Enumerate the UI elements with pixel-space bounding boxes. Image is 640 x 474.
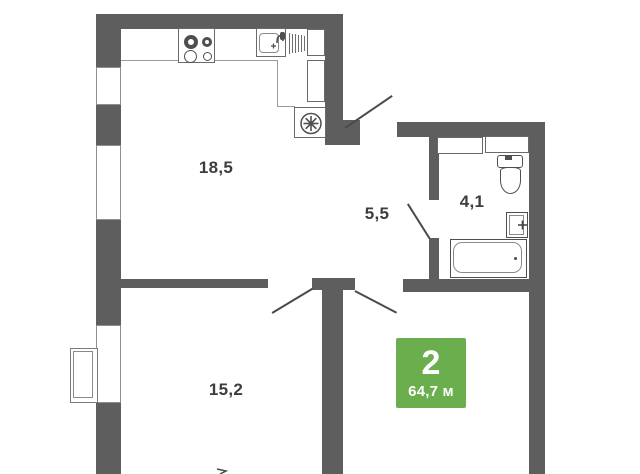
dish-rack-line bbox=[301, 35, 302, 52]
door-swing-bedroom bbox=[272, 288, 313, 314]
stove-icon bbox=[178, 28, 215, 63]
dish-rack-line bbox=[292, 34, 293, 53]
door-swing-living bbox=[355, 290, 397, 313]
wall-bedroom-divider bbox=[121, 279, 268, 288]
stove-burner-2 bbox=[202, 37, 212, 47]
balcony-bay-inner bbox=[73, 351, 93, 398]
apartment-badge[interactable]: 2 64,7 м bbox=[396, 338, 466, 408]
dish-rack-line bbox=[295, 34, 296, 53]
wall-bathroom-bottom bbox=[403, 279, 545, 292]
wall-left-segment-3 bbox=[96, 220, 121, 325]
window-2 bbox=[96, 145, 121, 220]
stove-burner-4 bbox=[203, 52, 212, 61]
wall-center-pier bbox=[312, 278, 355, 290]
wall-top bbox=[96, 14, 343, 29]
toilet-bowl bbox=[500, 167, 521, 194]
window-1 bbox=[96, 67, 121, 105]
toilet-flush-mark bbox=[505, 156, 512, 160]
cropped-plan-mark bbox=[216, 467, 230, 474]
wall-bathroom-divider-lower bbox=[429, 238, 439, 283]
door-swing-entrance bbox=[345, 95, 393, 128]
dish-rack-line bbox=[304, 36, 305, 51]
dish-rack-icon bbox=[289, 33, 290, 54]
wall-left-segment-1 bbox=[96, 14, 121, 67]
bathtub-inner bbox=[453, 242, 522, 273]
counter-cabinet-2 bbox=[307, 60, 325, 102]
vent-fan-icon bbox=[294, 107, 326, 138]
bathtub-icon bbox=[450, 239, 527, 278]
counter-line-side bbox=[277, 60, 278, 106]
room-label-bedroom: 15,2 bbox=[209, 380, 243, 400]
dish-rack-line bbox=[298, 35, 299, 52]
wall-right bbox=[529, 137, 545, 474]
room-label-hallway: 5,5 bbox=[365, 204, 390, 224]
kitchen-sink-icon bbox=[256, 28, 286, 57]
room-label-bathroom: 4,1 bbox=[460, 192, 485, 212]
badge-total-area: 64,7 м bbox=[408, 383, 454, 400]
bathroom-cabinet-1 bbox=[437, 137, 483, 154]
counter-cabinet-1 bbox=[307, 29, 325, 56]
wall-center-vertical bbox=[322, 290, 343, 474]
bathroom-cabinet-2 bbox=[485, 136, 529, 153]
badge-rooms-count: 2 bbox=[422, 346, 441, 380]
kitchen-faucet-icon bbox=[257, 29, 287, 58]
wall-kitchen-right bbox=[325, 29, 343, 145]
stove-burner-1 bbox=[184, 35, 198, 49]
washbasin-faucet-icon bbox=[517, 219, 529, 231]
room-label-kitchen: 18,5 bbox=[199, 158, 233, 178]
door-swing-bathroom bbox=[407, 203, 430, 239]
stove-burner-3 bbox=[184, 50, 197, 63]
balcony-door-opening bbox=[96, 325, 121, 403]
bathtub-drain bbox=[514, 257, 517, 260]
wall-bathroom-top bbox=[397, 122, 545, 137]
counter-line-bottom bbox=[277, 106, 295, 107]
wall-left-segment-4 bbox=[96, 403, 121, 474]
floor-plan: 18,5 5,5 4,1 15,2 2 64,7 м bbox=[0, 0, 640, 474]
wall-left-segment-2 bbox=[96, 105, 121, 145]
balcony-bay bbox=[70, 348, 98, 403]
